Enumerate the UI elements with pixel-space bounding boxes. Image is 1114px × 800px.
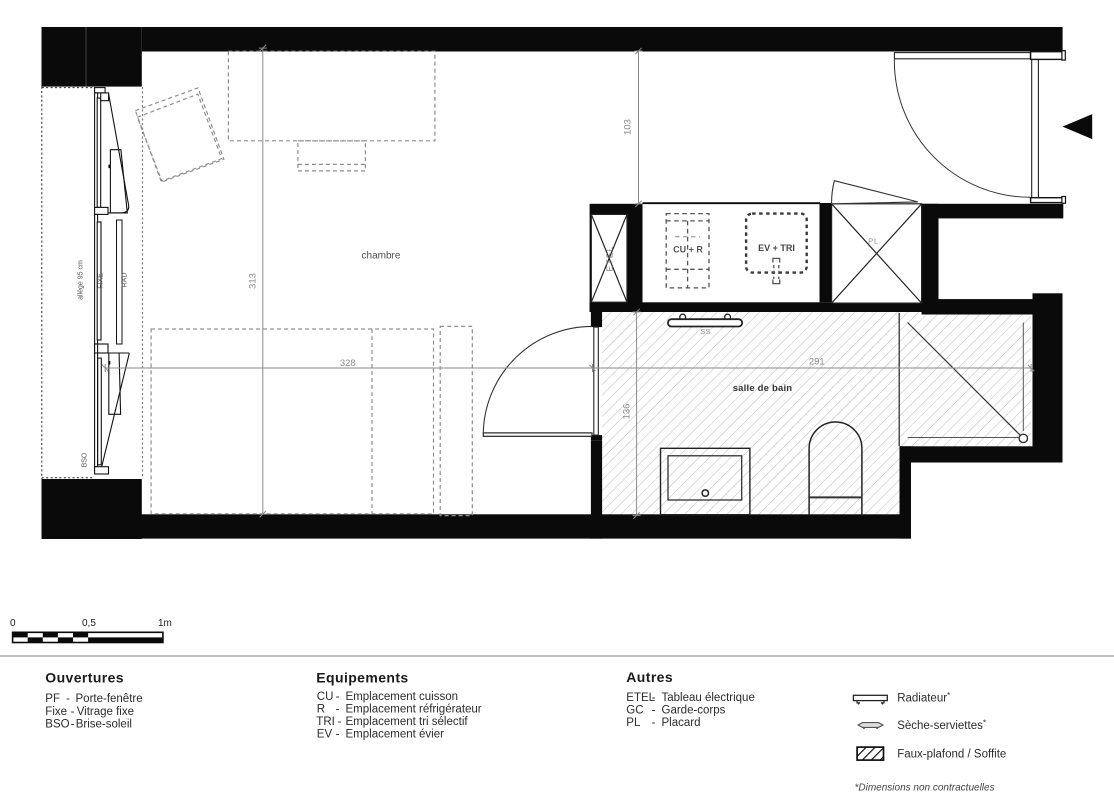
svg-text:Brise-soleil: Brise-soleil (76, 718, 132, 730)
svg-text:CU + R: CU + R (673, 245, 703, 255)
svg-text:-: - (336, 704, 340, 716)
svg-text:ETEL: ETEL (605, 245, 615, 271)
svg-text:Vitrage fixe: Vitrage fixe (77, 706, 134, 718)
svg-text:PF: PF (45, 693, 60, 705)
svg-text:Ouvertures: Ouvertures (45, 669, 124, 685)
svg-text:TRI: TRI (316, 716, 335, 728)
svg-text:0: 0 (10, 618, 16, 629)
svg-text:Emplacement cuisson: Emplacement cuisson (346, 691, 459, 703)
svg-text:RAD: RAD (122, 273, 129, 288)
svg-text:Porte-fenêtre: Porte-fenêtre (76, 693, 143, 705)
svg-text:allège 95 cm: allège 95 cm (78, 260, 85, 300)
svg-text:GC: GC (626, 705, 643, 717)
svg-text:Emplacement tri sélectif: Emplacement tri sélectif (346, 716, 469, 728)
svg-text:Garde-corps: Garde-corps (662, 705, 726, 717)
svg-text:-: - (652, 717, 656, 729)
svg-text:313: 313 (248, 273, 259, 289)
svg-text:BSO: BSO (82, 452, 89, 467)
svg-text:-: - (336, 729, 340, 741)
svg-text:-: - (338, 716, 342, 728)
svg-text:R: R (317, 704, 325, 716)
svg-text:Emplacement réfrigérateur: Emplacement réfrigérateur (346, 704, 482, 716)
svg-text:PL: PL (626, 717, 641, 729)
svg-text:103: 103 (623, 119, 634, 135)
svg-text:salle de bain: salle de bain (733, 383, 793, 394)
svg-text:EV: EV (317, 729, 333, 741)
svg-text:SS: SS (700, 327, 711, 336)
svg-text:*Dimensions non contractuelles: *Dimensions non contractuelles (855, 783, 995, 794)
svg-text:-: - (71, 718, 75, 730)
svg-text:Radiateur*: Radiateur* (897, 691, 950, 705)
svg-text:-: - (66, 693, 70, 705)
svg-text:Tableau électrique: Tableau électrique (662, 692, 755, 704)
svg-text:chambre: chambre (362, 251, 401, 262)
svg-text:EV + TRI: EV + TRI (758, 243, 795, 253)
svg-text:328: 328 (340, 358, 356, 369)
svg-text:Equipements: Equipements (316, 670, 408, 686)
svg-text:BSO: BSO (45, 718, 69, 730)
svg-text:-: - (336, 691, 340, 703)
svg-text:0,5: 0,5 (82, 618, 96, 629)
svg-text:Faux-plafond / Soffite: Faux-plafond / Soffite (897, 749, 1006, 761)
svg-text:Emplacement évier: Emplacement évier (346, 729, 445, 741)
svg-text:FIXE: FIXE (98, 273, 105, 289)
svg-text:-: - (652, 692, 656, 704)
svg-text:Fixe: Fixe (45, 706, 67, 718)
svg-text:Autres: Autres (626, 669, 673, 685)
svg-text:136: 136 (622, 404, 633, 420)
svg-text:-: - (652, 705, 656, 717)
svg-text:PL.: PL. (868, 236, 882, 245)
svg-text:Sèche-serviettes*: Sèche-serviettes* (897, 719, 986, 733)
svg-text:1m: 1m (158, 618, 172, 629)
svg-text:-: - (71, 706, 75, 718)
svg-text:291: 291 (809, 357, 825, 368)
svg-text:CU: CU (317, 691, 334, 703)
svg-text:Placard: Placard (662, 717, 701, 729)
